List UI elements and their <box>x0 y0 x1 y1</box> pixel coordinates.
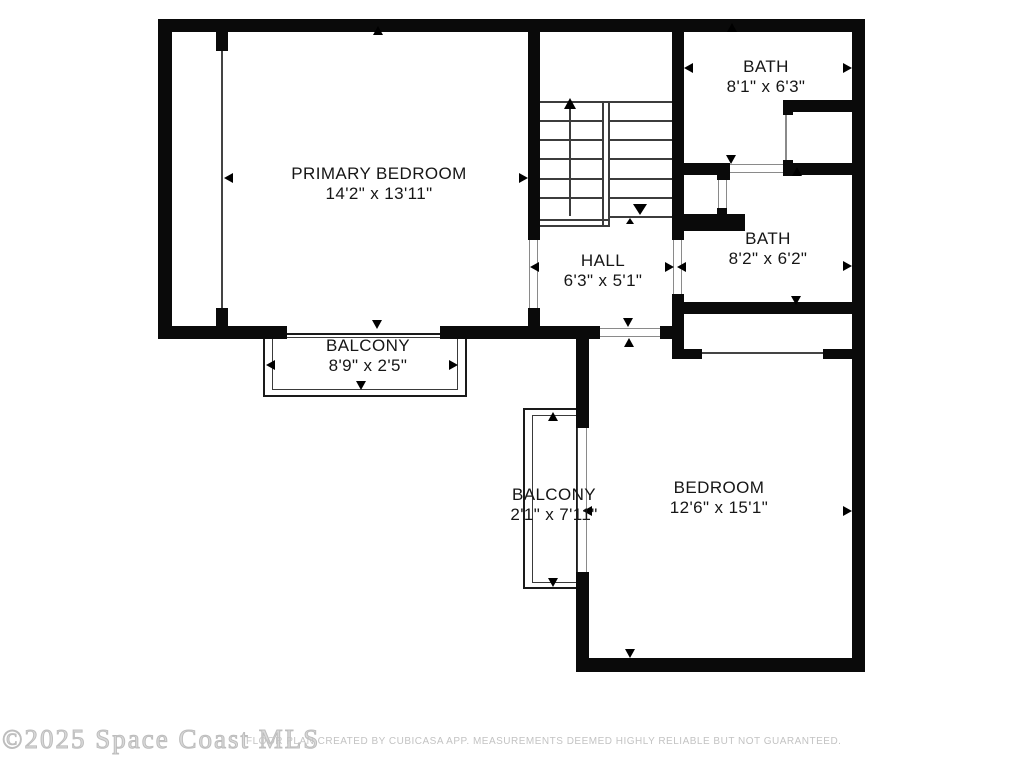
room-name: BATH <box>727 57 806 77</box>
stair-down-arrow-icon <box>633 204 647 215</box>
wall-middle-lower-stub <box>528 308 540 339</box>
room-dimensions: 8'9" x 2'5" <box>326 356 410 376</box>
stair-up-arrow-icon <box>564 98 576 109</box>
wall-exterior-left <box>158 19 172 339</box>
dimension-arrow-balcony1-right <box>449 360 458 370</box>
door-marker-hall-opening-top <box>623 318 633 327</box>
wall-bedroom-top-left <box>672 349 702 359</box>
room-dimensions: 14'2" x 13'11" <box>291 184 466 204</box>
room-label-primary-bedroom: PRIMARY BEDROOM 14'2" x 13'11" <box>291 164 466 204</box>
room-label-hall: HALL 6'3" x 5'1" <box>564 251 643 291</box>
door-marker-bath2-bottom <box>791 296 801 305</box>
wall-shower-jamb <box>783 100 793 115</box>
threshold-primary-door-b <box>537 240 538 308</box>
threshold-primary-door-a <box>529 240 530 308</box>
dimension-arrow-balcony1-bottom <box>356 381 366 390</box>
room-name: BEDROOM <box>670 478 768 498</box>
stair-tread <box>610 158 672 160</box>
wall-bedroom-left-lower <box>576 572 589 672</box>
dimension-arrow-balcony2-bottom <box>548 578 558 587</box>
wall-bath-middle-bottom <box>672 302 865 314</box>
wall-bedroom-left-upper <box>576 326 589 428</box>
room-name: BALCONY <box>326 336 410 356</box>
doorway-line-right <box>726 180 727 210</box>
dimension-arrow-primary-top <box>373 26 383 35</box>
stair-tread <box>538 101 672 103</box>
room-label-bath-middle: BATH 8'2" x 6'2" <box>729 229 808 269</box>
room-dimensions: 8'1" x 6'3" <box>727 77 806 97</box>
room-name: PRIMARY BEDROOM <box>291 164 466 184</box>
dimension-arrow-primary-right <box>519 173 528 183</box>
room-name: HALL <box>564 251 643 271</box>
floor-plan: PRIMARY BEDROOM 14'2" x 13'11" BATH 8'1"… <box>0 0 1024 768</box>
threshold-bath1-door-b <box>730 172 783 173</box>
dimension-arrow-balcony1-left <box>266 360 275 370</box>
door-marker-bath1-door <box>726 155 736 164</box>
wall-bedroom-top-right <box>823 349 852 359</box>
bedroom-window-line <box>702 352 823 354</box>
dimension-arrow-hall-right <box>665 262 674 272</box>
door-marker-shower <box>792 167 802 176</box>
room-name: BATH <box>729 229 808 249</box>
room-label-balcony-bottom: BALCONY 2'1" x 7'11" <box>510 485 597 525</box>
closet-stub-bottom <box>216 308 228 326</box>
stair-rail-return <box>538 225 610 227</box>
wall-shower-top <box>783 100 852 112</box>
wall-bedroom-bottom <box>576 658 865 672</box>
room-dimensions: 6'3" x 5'1" <box>564 271 643 291</box>
dimension-arrow-bath2-left <box>677 262 686 272</box>
stair-landing-marker-icon <box>626 218 634 224</box>
wall-exterior-right <box>852 19 865 672</box>
room-label-bath-top: BATH 8'1" x 6'3" <box>727 57 806 97</box>
doorway-line-left <box>718 180 719 210</box>
stair-divider <box>608 101 610 226</box>
wall-primary-bottom-left <box>158 326 287 339</box>
room-label-balcony-top: BALCONY 8'9" x 2'5" <box>326 336 410 376</box>
stair-tread <box>610 178 672 180</box>
threshold-hall-opening-b <box>600 336 660 337</box>
wall-middle-upper <box>528 19 540 240</box>
dimension-arrow-primary-left <box>224 173 233 183</box>
dimension-arrow-bath1-right <box>843 63 852 73</box>
closet-divider-line <box>221 49 223 308</box>
closet-stub-top <box>216 31 228 51</box>
stair-tread <box>610 139 672 141</box>
room-name: BALCONY <box>510 485 597 505</box>
doorway-jamb-top <box>717 169 730 180</box>
wall-exterior-top <box>158 19 865 32</box>
dimension-arrow-bath2-right <box>843 261 852 271</box>
door-marker-hall-opening-bottom <box>624 338 634 347</box>
staircase <box>538 100 672 226</box>
stair-tread <box>610 120 672 122</box>
stair-tread <box>610 216 672 218</box>
disclaimer-text: FLOOR PLAN CREATED BY CUBICASA APP. MEAS… <box>246 736 841 747</box>
stair-tread <box>610 197 672 199</box>
shower-opening-line <box>785 115 787 162</box>
dimension-arrow-bath1-top <box>727 23 737 32</box>
dimension-arrow-balcony2-top <box>548 412 558 421</box>
dimension-arrow-bedroom-right <box>843 506 852 516</box>
dimension-arrow-bath1-left <box>684 63 693 73</box>
stair-divider <box>602 101 604 226</box>
room-label-bedroom: BEDROOM 12'6" x 15'1" <box>670 478 768 518</box>
door-marker-hall-primary <box>530 262 539 272</box>
doorway-jamb-bottom <box>717 208 727 215</box>
threshold-bath1-door-a <box>730 164 783 165</box>
stair-up-arrow-line <box>569 108 571 216</box>
door-marker-balcony-top <box>372 320 382 329</box>
threshold-hall-opening-a <box>600 328 660 329</box>
stair-rail-return <box>540 219 608 221</box>
room-dimensions: 8'2" x 6'2" <box>729 249 808 269</box>
dimension-arrow-bedroom-bottom <box>625 649 635 658</box>
wall-stairs-right-upper <box>672 19 684 240</box>
room-dimensions: 12'6" x 15'1" <box>670 498 768 518</box>
room-dimensions: 2'1" x 7'11" <box>510 505 597 525</box>
